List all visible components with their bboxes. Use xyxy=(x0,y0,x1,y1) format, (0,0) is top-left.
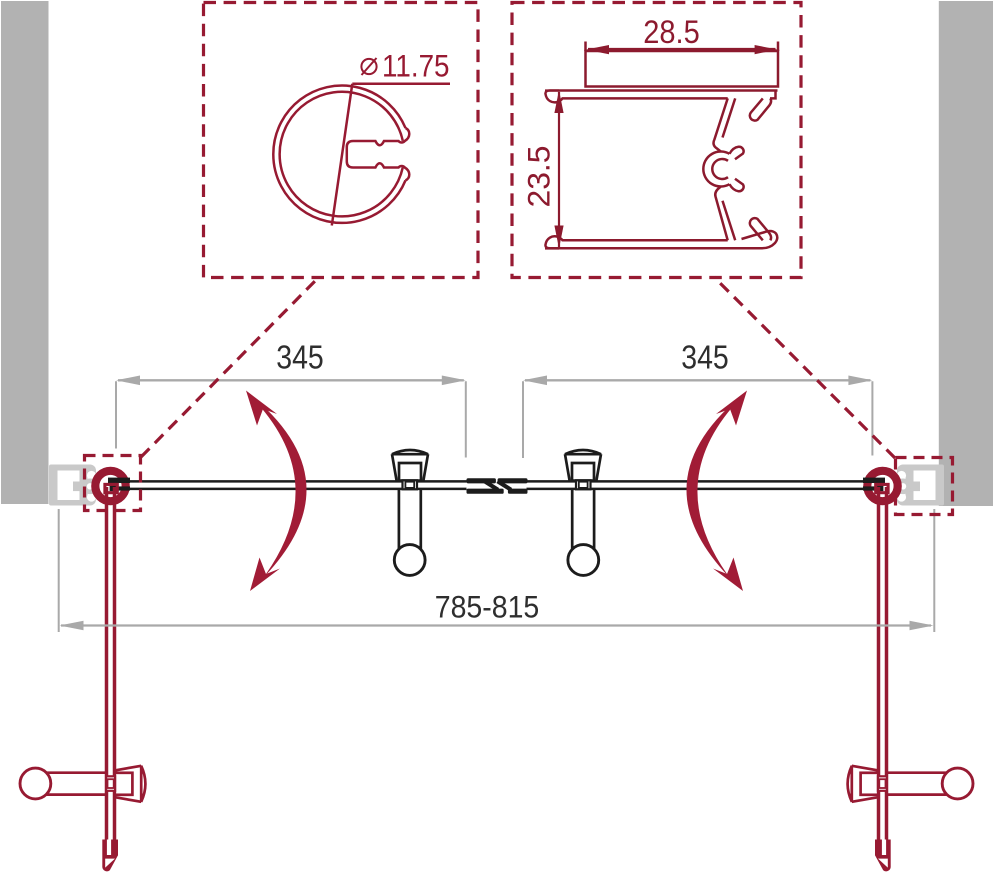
svg-text:11.75: 11.75 xyxy=(382,48,450,84)
svg-text:28.5: 28.5 xyxy=(643,14,700,50)
svg-text:785-815: 785-815 xyxy=(435,589,540,625)
svg-text:345: 345 xyxy=(276,340,324,377)
svg-text:345: 345 xyxy=(681,340,729,377)
svg-text:23.5: 23.5 xyxy=(521,146,557,208)
